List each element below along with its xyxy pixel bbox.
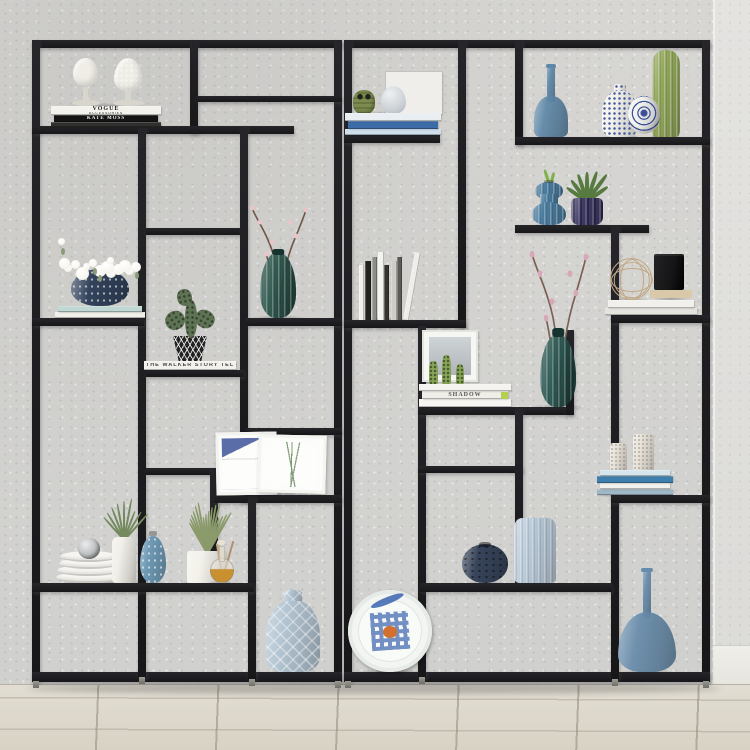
book-spine bbox=[600, 483, 670, 489]
vase-lip bbox=[479, 542, 490, 547]
book-spine-label: SHADOW bbox=[448, 392, 481, 398]
wood-slab bbox=[650, 290, 692, 298]
book-spine-label: KATE MOSS bbox=[87, 116, 125, 121]
vase-lip bbox=[544, 180, 555, 183]
cactus-pot: THE WALKER STORY TELLER bbox=[144, 286, 236, 370]
candles-on-books bbox=[596, 430, 674, 495]
white-book-slab bbox=[604, 298, 698, 315]
book-spine bbox=[384, 265, 389, 320]
book-spine-sublabel: ACCESSORIES bbox=[89, 112, 123, 115]
owl-figurine bbox=[353, 90, 375, 114]
frame-bar bbox=[515, 40, 523, 145]
frame-bar bbox=[190, 40, 198, 134]
bottle-lip bbox=[641, 568, 654, 572]
book-spine: KATE MOSS bbox=[54, 115, 158, 122]
plate-center-dot bbox=[383, 626, 397, 638]
vogue-books: KATE MOSSVOGUEACCESSORIES bbox=[50, 106, 162, 127]
book-spine-label: THE WALKER STORY TELLER bbox=[146, 363, 234, 369]
book-spine bbox=[391, 261, 397, 320]
book-spine bbox=[397, 257, 402, 320]
wire-ball bbox=[610, 258, 652, 300]
vase-lip bbox=[272, 249, 284, 255]
quilted-vase bbox=[266, 590, 320, 672]
flower-puff bbox=[131, 262, 141, 272]
pillar-candle bbox=[633, 434, 653, 470]
oil-bottle bbox=[204, 540, 238, 583]
white-cylinder-vase bbox=[112, 537, 137, 583]
frame-foot bbox=[139, 677, 145, 684]
flower-puff bbox=[71, 260, 80, 269]
book-spine bbox=[378, 252, 384, 320]
finial-stem bbox=[125, 89, 131, 101]
green-candle bbox=[442, 355, 450, 384]
flower-puff bbox=[59, 258, 70, 269]
book-spine: SHADOW bbox=[422, 391, 508, 399]
finial-stem bbox=[83, 87, 88, 101]
vase-lip bbox=[149, 531, 157, 536]
blue-white-orb bbox=[628, 96, 661, 135]
book-spine bbox=[600, 470, 670, 476]
wire-sphere bbox=[610, 258, 652, 300]
deco-plate bbox=[348, 590, 432, 672]
book-spine bbox=[359, 265, 364, 320]
frame-foot bbox=[335, 681, 341, 688]
vase-body bbox=[514, 518, 556, 583]
cactus-lobe bbox=[161, 307, 188, 333]
flower-leaf bbox=[93, 268, 97, 275]
oil-flask-neck bbox=[219, 546, 225, 563]
faceted-sphere-vase bbox=[462, 544, 508, 583]
frame-bar bbox=[32, 40, 342, 48]
book-spine bbox=[345, 129, 441, 135]
frame-bar bbox=[146, 228, 246, 235]
picture-frame bbox=[257, 434, 326, 494]
flower-puff bbox=[58, 238, 65, 245]
shelf-scene-photo: KATE MOSSVOGUEACCESSORIESTHE WALKER STOR… bbox=[0, 0, 750, 750]
ribbed-cylinder-vase bbox=[514, 518, 556, 583]
green-candle bbox=[456, 364, 464, 384]
black-box bbox=[650, 250, 692, 298]
egg-ornament bbox=[381, 86, 406, 114]
patterned-pot bbox=[170, 336, 210, 361]
art-frames bbox=[214, 434, 328, 495]
upright-books bbox=[356, 248, 412, 320]
vase-body bbox=[462, 544, 508, 583]
blue-books bbox=[344, 112, 442, 135]
book-spine bbox=[419, 399, 511, 407]
tall-blue-bottle bbox=[618, 568, 676, 672]
purple-ribbed-pot bbox=[571, 198, 603, 225]
pillar-candle bbox=[610, 443, 627, 470]
flower-puff bbox=[107, 257, 114, 264]
blossom-vase-left bbox=[246, 192, 310, 318]
oil-flask-stopper bbox=[217, 540, 225, 545]
frame-bar bbox=[146, 468, 216, 475]
frame-foot bbox=[703, 681, 709, 688]
purple-planter-plant bbox=[562, 166, 612, 225]
finial-top bbox=[114, 58, 142, 91]
book-spine bbox=[365, 261, 371, 320]
dotted-bud-vase bbox=[140, 528, 166, 583]
wavy-bud-vase bbox=[532, 176, 566, 225]
frame-bar bbox=[138, 126, 146, 678]
book-spine bbox=[345, 113, 441, 121]
finial bbox=[110, 58, 147, 106]
cactus-plant bbox=[157, 289, 223, 338]
bottle-body bbox=[534, 96, 568, 137]
book-spine bbox=[58, 306, 142, 312]
flower-leaf bbox=[135, 272, 139, 279]
book-spine bbox=[55, 312, 145, 318]
flower-puff bbox=[119, 260, 131, 272]
vase-bulge-bottom bbox=[532, 202, 566, 225]
frame-foot bbox=[33, 681, 39, 688]
book-spine bbox=[403, 252, 421, 320]
bottle-body bbox=[618, 612, 676, 672]
frame-bar bbox=[196, 96, 342, 102]
book-spine: THE WALKER STORY TELLER bbox=[144, 361, 236, 370]
vase-lip bbox=[552, 328, 564, 337]
silver-knot-ornament bbox=[78, 538, 100, 559]
black-box-body bbox=[654, 254, 684, 290]
frame-art-botanical bbox=[265, 441, 319, 488]
flower-leaf bbox=[61, 248, 65, 255]
frame-bar bbox=[334, 40, 342, 682]
book-spine bbox=[419, 384, 511, 391]
vase-body bbox=[140, 536, 166, 583]
frame-foot bbox=[345, 681, 351, 688]
deco-plate-disc bbox=[345, 587, 435, 675]
finial-pair bbox=[60, 58, 152, 106]
frame-bar bbox=[458, 40, 466, 328]
vase-body bbox=[266, 601, 320, 672]
book-spine bbox=[51, 122, 161, 127]
shelf-items: KATE MOSSVOGUEACCESSORIESTHE WALKER STOR… bbox=[0, 0, 750, 750]
book-spine bbox=[605, 308, 697, 315]
blue-glass-bottle bbox=[534, 64, 568, 137]
book-spine: VOGUEACCESSORIES bbox=[51, 106, 161, 115]
flower-pot bbox=[54, 238, 146, 318]
finial-top bbox=[73, 58, 98, 86]
orb-ornament bbox=[625, 92, 663, 137]
finial bbox=[69, 58, 102, 106]
frame-bar bbox=[344, 40, 710, 48]
bottle-lip bbox=[546, 64, 557, 68]
frame-foot bbox=[612, 679, 618, 686]
owl-egg-books bbox=[346, 72, 442, 114]
flower-puff bbox=[89, 259, 97, 267]
accent-tab bbox=[501, 392, 508, 399]
blossom-vase-right bbox=[526, 232, 590, 407]
bottle-neck bbox=[643, 568, 651, 618]
frame-foot bbox=[419, 677, 425, 684]
book-spine bbox=[348, 121, 438, 129]
book-spine bbox=[597, 489, 673, 495]
book-spine bbox=[597, 476, 673, 483]
shadow-books-vignette: SHADOW bbox=[418, 330, 512, 407]
book-spine bbox=[372, 257, 377, 320]
frame-foot bbox=[249, 679, 255, 686]
frame-bar bbox=[418, 466, 523, 473]
green-candle bbox=[429, 361, 437, 384]
book-spine bbox=[608, 300, 694, 308]
